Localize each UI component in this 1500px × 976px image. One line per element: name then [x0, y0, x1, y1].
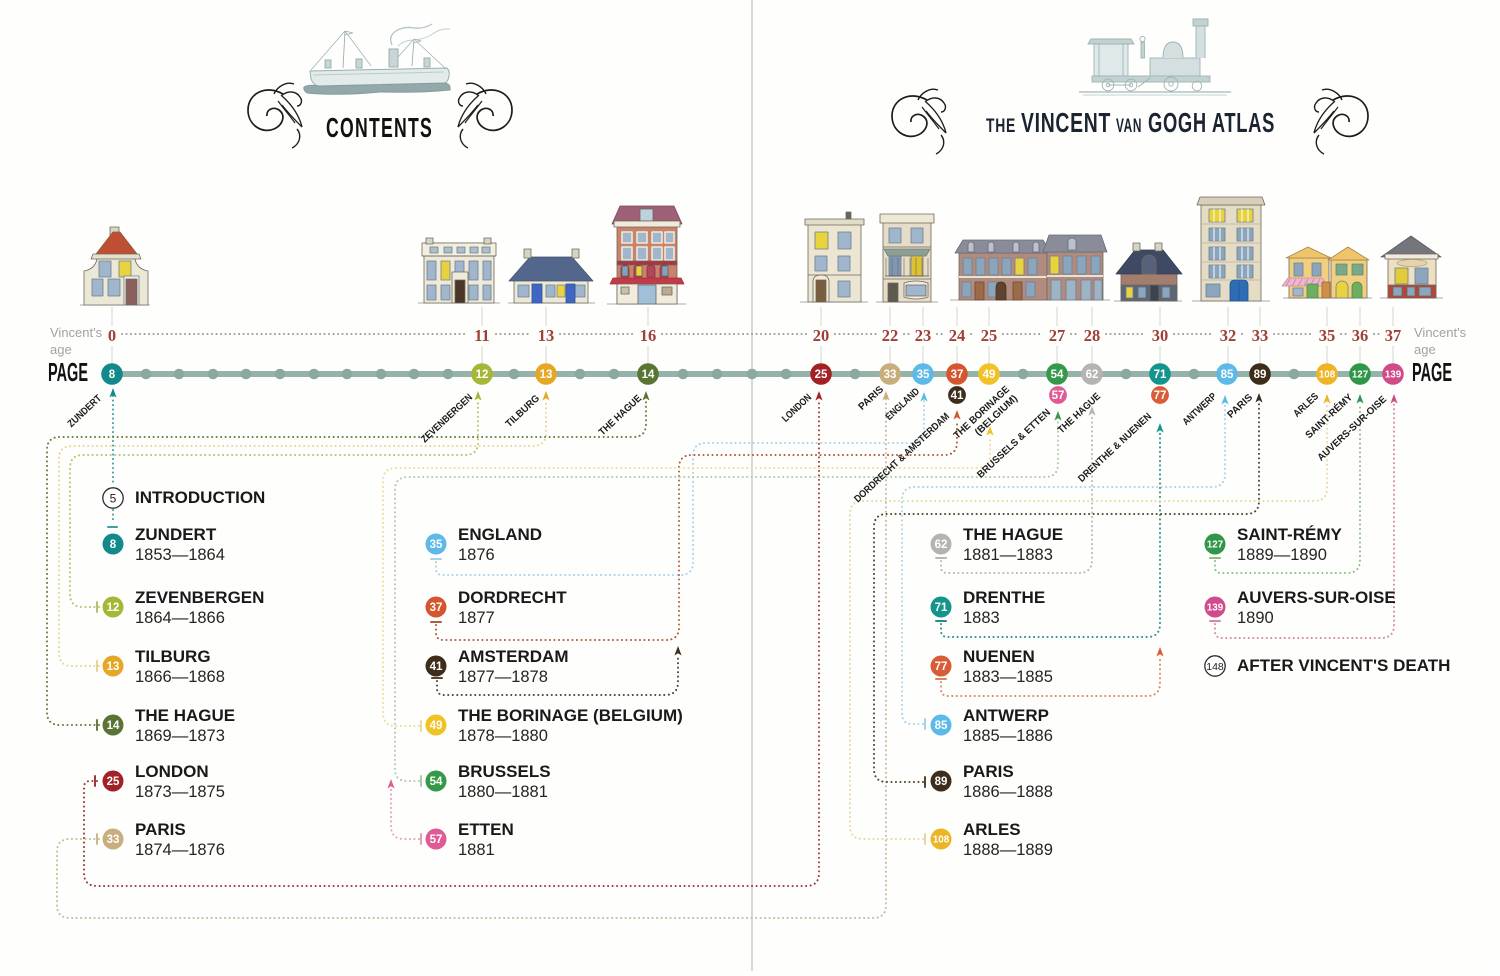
svg-text:89: 89 [935, 776, 948, 788]
svg-text:1864—1866: 1864—1866 [135, 609, 225, 627]
svg-text:SAINT-RÉMY: SAINT-RÉMY [1237, 525, 1343, 544]
svg-text:1853—1864: 1853—1864 [135, 546, 225, 564]
svg-text:14: 14 [642, 369, 655, 381]
svg-text:57: 57 [430, 834, 443, 846]
svg-text:1876: 1876 [458, 546, 495, 564]
svg-text:1881: 1881 [458, 841, 495, 859]
svg-text:13: 13 [540, 369, 553, 381]
svg-text:24: 24 [949, 326, 966, 345]
svg-text:VINCENT: VINCENT [1021, 107, 1111, 138]
svg-text:ZEVENBERGEN: ZEVENBERGEN [135, 588, 264, 607]
svg-text:33: 33 [107, 834, 120, 846]
svg-text:62: 62 [935, 539, 948, 551]
svg-text:85: 85 [1221, 369, 1234, 381]
svg-text:THE HAGUE: THE HAGUE [135, 706, 235, 725]
svg-text:49: 49 [430, 720, 443, 732]
svg-text:54: 54 [1051, 369, 1064, 381]
svg-text:89: 89 [1254, 369, 1267, 381]
svg-text:139: 139 [1385, 370, 1402, 381]
svg-text:PARIS: PARIS [135, 820, 186, 839]
svg-text:1881—1883: 1881—1883 [963, 546, 1053, 564]
svg-text:THE HAGUE: THE HAGUE [963, 525, 1063, 544]
svg-text:ANTWERP: ANTWERP [963, 706, 1049, 725]
svg-text:71: 71 [1154, 369, 1167, 381]
svg-text:16: 16 [640, 326, 657, 345]
svg-text:AUVERS-SUR-OISE: AUVERS-SUR-OISE [1237, 588, 1396, 607]
svg-text:13: 13 [107, 661, 120, 673]
svg-text:77: 77 [1154, 390, 1167, 402]
svg-text:54: 54 [430, 776, 443, 788]
svg-text:20: 20 [813, 326, 830, 345]
svg-text:57: 57 [1052, 390, 1065, 402]
svg-text:NUENEN: NUENEN [963, 647, 1035, 666]
svg-text:1885—1886: 1885—1886 [963, 727, 1053, 745]
svg-text:INTRODUCTION: INTRODUCTION [135, 488, 265, 507]
svg-text:8: 8 [109, 369, 116, 381]
svg-text:PARIS: PARIS [963, 762, 1014, 781]
svg-text:1888—1889: 1888—1889 [963, 841, 1053, 859]
svg-text:25: 25 [107, 776, 120, 788]
svg-text:35: 35 [430, 539, 443, 551]
svg-text:32: 32 [1220, 326, 1237, 345]
svg-text:14: 14 [107, 720, 120, 732]
svg-text:27: 27 [1049, 326, 1066, 345]
svg-text:22: 22 [882, 326, 899, 345]
svg-text:5: 5 [110, 491, 117, 505]
svg-text:ENGLAND: ENGLAND [458, 525, 542, 544]
svg-text:77: 77 [935, 661, 948, 673]
svg-text:13: 13 [538, 326, 555, 345]
svg-text:1873—1875: 1873—1875 [135, 783, 225, 801]
svg-text:LONDON: LONDON [135, 762, 209, 781]
svg-text:62: 62 [1086, 369, 1099, 381]
svg-text:37: 37 [1385, 326, 1402, 345]
svg-text:1866—1868: 1866—1868 [135, 668, 225, 686]
svg-text:ZUNDERT: ZUNDERT [135, 525, 217, 544]
svg-text:age: age [1414, 342, 1436, 357]
svg-text:28: 28 [1084, 326, 1101, 345]
svg-text:AFTER VINCENT'S DEATH: AFTER VINCENT'S DEATH [1237, 656, 1450, 675]
svg-text:1883—1885: 1883—1885 [963, 668, 1053, 686]
svg-text:148: 148 [1206, 661, 1224, 673]
svg-text:1877: 1877 [458, 609, 495, 627]
svg-text:THE: THE [986, 116, 1016, 137]
svg-text:PAGE: PAGE [1412, 357, 1452, 387]
svg-text:1869—1873: 1869—1873 [135, 727, 225, 745]
svg-text:AMSTERDAM: AMSTERDAM [458, 647, 569, 666]
svg-text:1880—1881: 1880—1881 [458, 783, 548, 801]
svg-text:1878—1880: 1878—1880 [458, 727, 548, 745]
svg-text:49: 49 [983, 369, 996, 381]
svg-text:12: 12 [107, 602, 120, 614]
svg-text:1877—1878: 1877—1878 [458, 668, 548, 686]
svg-text:THE BORINAGE (BELGIUM): THE BORINAGE (BELGIUM) [458, 706, 683, 725]
svg-text:DRENTHE: DRENTHE [963, 588, 1045, 607]
svg-text:1889—1890: 1889—1890 [1237, 546, 1327, 564]
svg-text:11: 11 [474, 326, 490, 345]
svg-text:GOGH ATLAS: GOGH ATLAS [1148, 107, 1275, 138]
svg-text:30: 30 [1152, 326, 1169, 345]
svg-text:36: 36 [1352, 326, 1369, 345]
svg-text:35: 35 [917, 369, 930, 381]
svg-text:8: 8 [110, 539, 117, 551]
svg-text:37: 37 [951, 369, 964, 381]
svg-text:1874—1876: 1874—1876 [135, 841, 225, 859]
svg-text:127: 127 [1352, 370, 1369, 381]
svg-text:1890: 1890 [1237, 609, 1274, 627]
svg-text:ARLES: ARLES [963, 820, 1021, 839]
svg-text:25: 25 [981, 326, 998, 345]
svg-text:TILBURG: TILBURG [135, 647, 211, 666]
svg-text:VAN: VAN [1116, 116, 1142, 137]
svg-text:BRUSSELS: BRUSSELS [458, 762, 551, 781]
svg-text:1883: 1883 [963, 609, 1000, 627]
svg-text:37: 37 [430, 602, 443, 614]
svg-text:12: 12 [476, 369, 489, 381]
svg-text:PAGE: PAGE [48, 357, 88, 387]
svg-text:85: 85 [935, 720, 948, 732]
svg-text:127: 127 [1207, 540, 1224, 551]
svg-text:23: 23 [915, 326, 932, 345]
svg-text:33: 33 [884, 369, 897, 381]
svg-text:Vincent's: Vincent's [50, 325, 103, 340]
svg-text:age: age [50, 342, 72, 357]
svg-text:108: 108 [1319, 370, 1336, 381]
svg-text:CONTENTS: CONTENTS [326, 112, 433, 143]
svg-text:41: 41 [430, 661, 443, 673]
svg-text:0: 0 [108, 326, 116, 345]
svg-text:Vincent's: Vincent's [1414, 325, 1467, 340]
svg-text:71: 71 [935, 602, 948, 614]
svg-text:35: 35 [1319, 326, 1336, 345]
svg-text:33: 33 [1252, 326, 1269, 345]
svg-text:108: 108 [933, 835, 950, 846]
svg-text:25: 25 [815, 369, 828, 381]
svg-text:41: 41 [951, 390, 964, 402]
svg-text:1886—1888: 1886—1888 [963, 783, 1053, 801]
svg-text:ETTEN: ETTEN [458, 820, 514, 839]
svg-text:DORDRECHT: DORDRECHT [458, 588, 567, 607]
svg-text:139: 139 [1207, 603, 1224, 614]
